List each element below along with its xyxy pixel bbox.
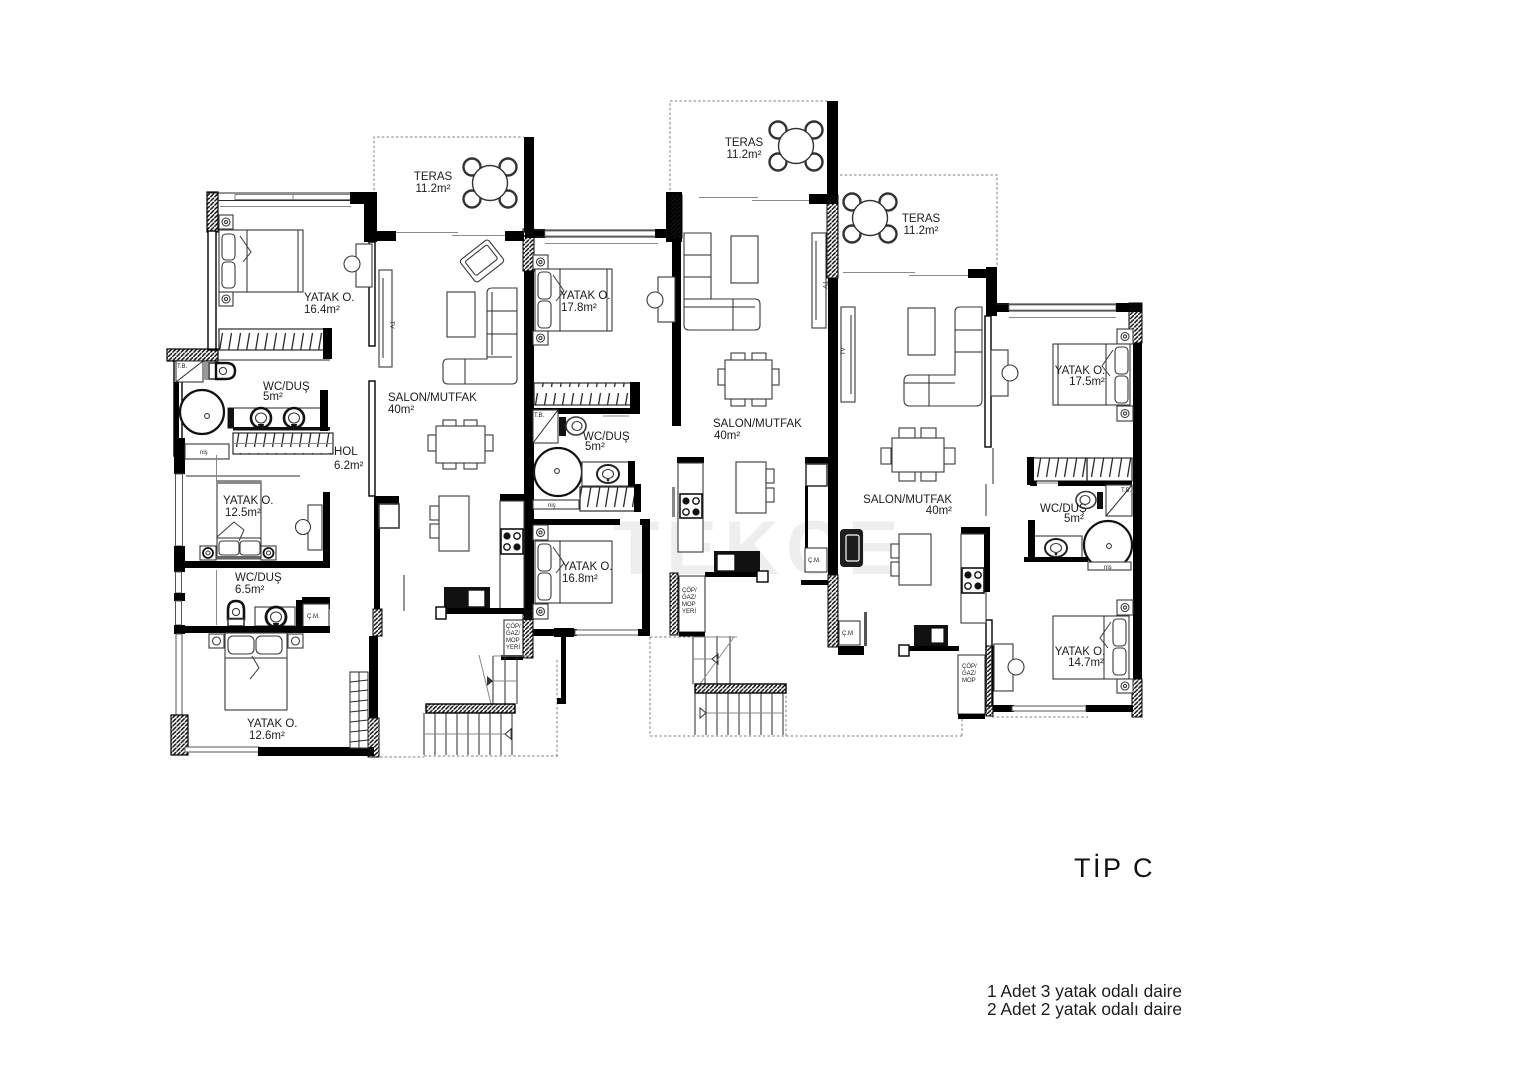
svg-text:Ç.M.: Ç.M.: [808, 558, 821, 564]
svg-text:YERİ: YERİ: [506, 644, 520, 651]
svg-text:12.5m²: 12.5m²: [225, 507, 261, 519]
svg-text:5m²: 5m²: [1064, 513, 1084, 525]
svg-text:SALON/MUTFAK: SALON/MUTFAK: [713, 418, 802, 430]
svg-text:ÇÖP/: ÇÖP/: [506, 623, 521, 630]
svg-text:14.7m²: 14.7m²: [1068, 657, 1104, 669]
svg-text:TV: TV: [841, 347, 847, 355]
svg-text:T.B.: T.B.: [177, 364, 188, 370]
svg-text:Ç.M: Ç.M: [842, 631, 853, 637]
svg-text:6.5m²: 6.5m²: [235, 584, 265, 596]
svg-text:11.2m²: 11.2m²: [416, 183, 451, 195]
svg-text:niş: niş: [548, 503, 556, 509]
svg-text:ÇÖP/: ÇÖP/: [962, 663, 977, 670]
svg-text:YATAK O.: YATAK O.: [560, 290, 610, 302]
svg-text:YATAK O.: YATAK O.: [562, 561, 612, 573]
svg-text:17.5m²: 17.5m²: [1069, 376, 1105, 388]
svg-text:16.8m²: 16.8m²: [562, 573, 598, 585]
svg-text:5m²: 5m²: [585, 441, 605, 453]
svg-text:TERAS: TERAS: [902, 213, 941, 225]
svg-text:TV: TV: [388, 321, 394, 329]
svg-text:WC/DUŞ: WC/DUŞ: [235, 572, 282, 584]
svg-text:TERAS: TERAS: [725, 137, 764, 149]
svg-text:MOP: MOP: [682, 602, 696, 608]
svg-text:T.B.: T.B.: [534, 413, 545, 419]
svg-text:TV: TV: [821, 281, 827, 289]
svg-text:ÇÖP/: ÇÖP/: [682, 587, 697, 594]
svg-text:Ç.M.: Ç.M.: [307, 614, 320, 620]
svg-text:GAZ/: GAZ/: [962, 671, 976, 677]
svg-text:12.6m²: 12.6m²: [249, 730, 285, 742]
svg-text:5m²: 5m²: [263, 391, 283, 403]
svg-text:40m²: 40m²: [714, 430, 740, 442]
svg-text:YATAK O.: YATAK O.: [247, 718, 297, 730]
svg-text:6.2m²: 6.2m²: [334, 460, 364, 472]
svg-text:SALON/MUTFAK: SALON/MUTFAK: [388, 392, 477, 404]
svg-text:YERİ: YERİ: [682, 608, 696, 615]
svg-text:40m²: 40m²: [388, 404, 414, 416]
svg-text:TERAS: TERAS: [414, 171, 453, 183]
svg-text:MOP: MOP: [962, 678, 976, 684]
svg-text:niş: niş: [1104, 565, 1112, 571]
svg-text:MOP: MOP: [506, 638, 520, 644]
svg-text:YATAK O.: YATAK O.: [223, 495, 273, 507]
svg-text:1 Adet 3 yatak odalı daire: 1 Adet 3 yatak odalı daire: [987, 981, 1182, 1001]
svg-text:11.2m²: 11.2m²: [904, 225, 939, 237]
svg-text:16.4m²: 16.4m²: [304, 304, 340, 316]
svg-text:T.B.: T.B.: [1121, 488, 1132, 494]
svg-text:11.2m²: 11.2m²: [727, 149, 762, 161]
svg-text:2 Adet 2 yatak odalı daire: 2 Adet 2 yatak odalı daire: [987, 999, 1182, 1019]
svg-text:TİP C: TİP C: [1074, 852, 1155, 883]
svg-text:YATAK O.: YATAK O.: [304, 292, 354, 304]
svg-text:40m²: 40m²: [926, 505, 952, 517]
svg-text:GAZ/: GAZ/: [506, 631, 520, 637]
svg-text:niş: niş: [200, 450, 208, 456]
svg-text:HOL: HOL: [334, 446, 358, 458]
svg-text:GAZ/: GAZ/: [682, 595, 696, 601]
svg-text:17.8m²: 17.8m²: [561, 302, 597, 314]
